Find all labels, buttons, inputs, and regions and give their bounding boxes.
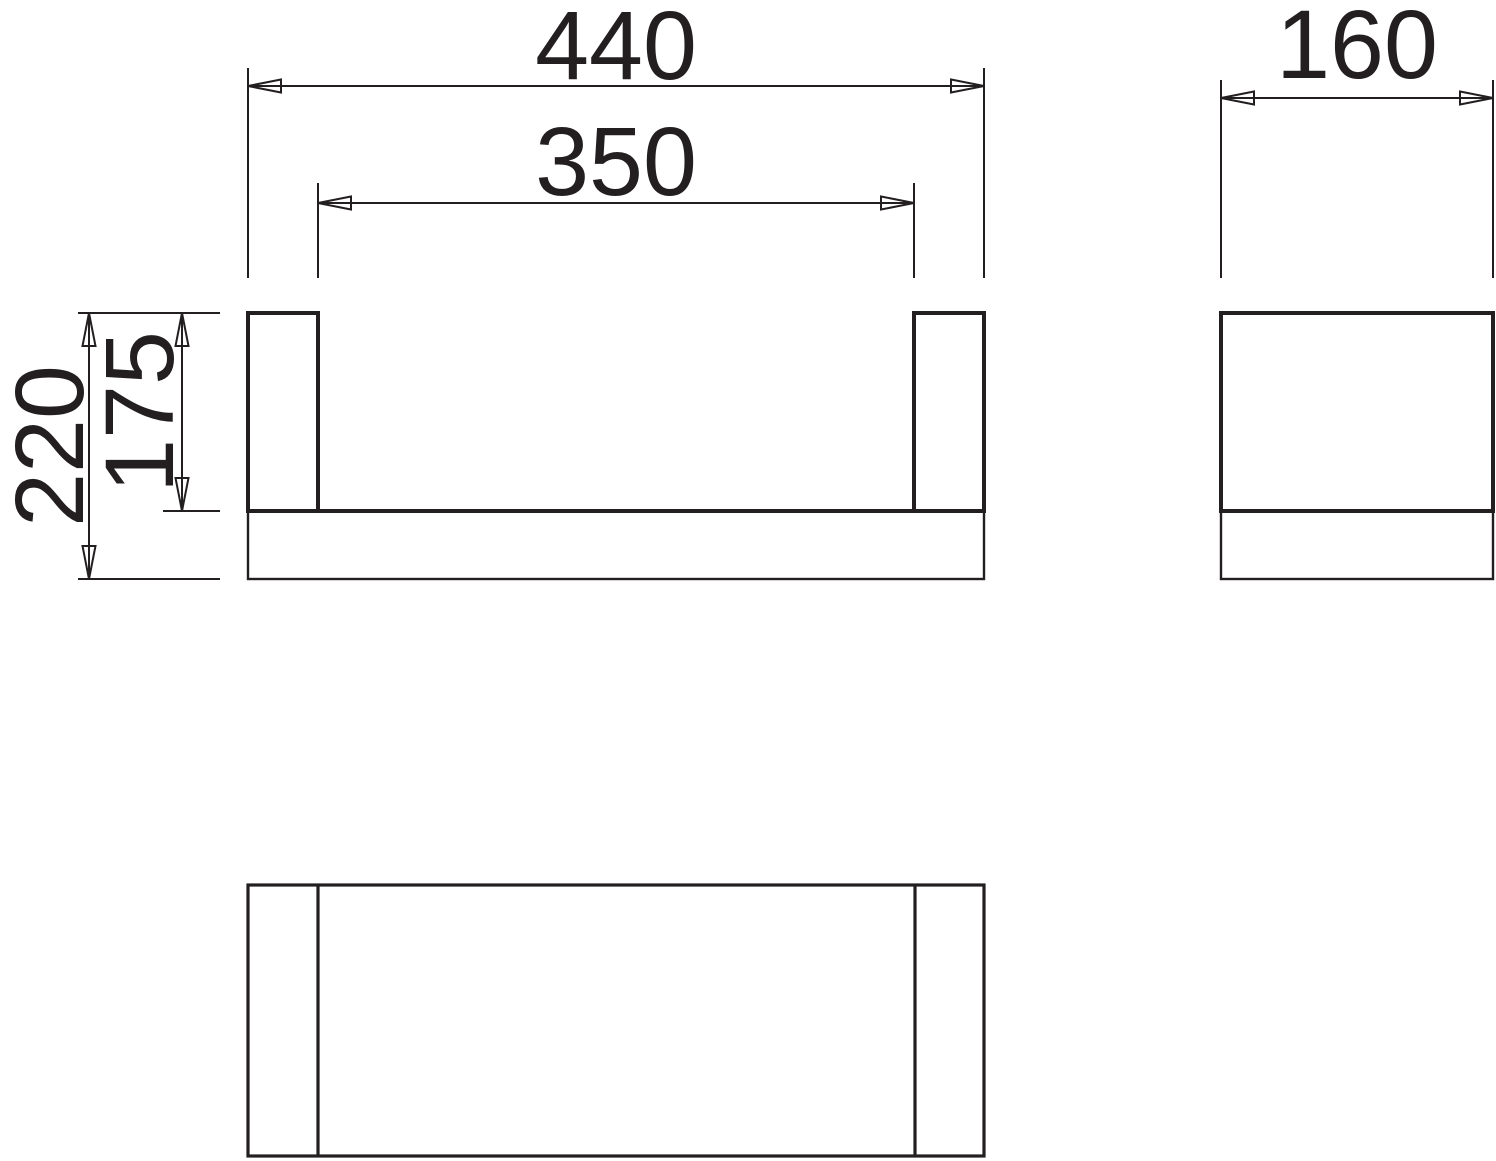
front-view bbox=[246, 313, 986, 579]
dimension-label-depth: 160 bbox=[1276, 0, 1438, 99]
dimension-inner-width: 350 bbox=[318, 107, 914, 278]
top-view bbox=[248, 885, 984, 1156]
side-view-shelf-board bbox=[1221, 511, 1493, 579]
technical-drawing-canvas: 440 350 160 220 175 bbox=[0, 0, 1496, 1161]
dimension-label-inner-height: 175 bbox=[85, 331, 194, 493]
dimension-label-inner-width: 350 bbox=[535, 107, 697, 216]
dimension-inner-height: 175 bbox=[85, 313, 220, 511]
dimension-label-overall-width: 440 bbox=[535, 0, 697, 100]
dimension-depth: 160 bbox=[1221, 0, 1493, 278]
front-view-left-post bbox=[248, 313, 318, 511]
side-view-body bbox=[1221, 313, 1493, 511]
front-view-shelf-board bbox=[248, 511, 984, 579]
side-view bbox=[1221, 313, 1493, 579]
front-view-right-post bbox=[914, 313, 984, 511]
top-view-outline bbox=[248, 885, 984, 1156]
